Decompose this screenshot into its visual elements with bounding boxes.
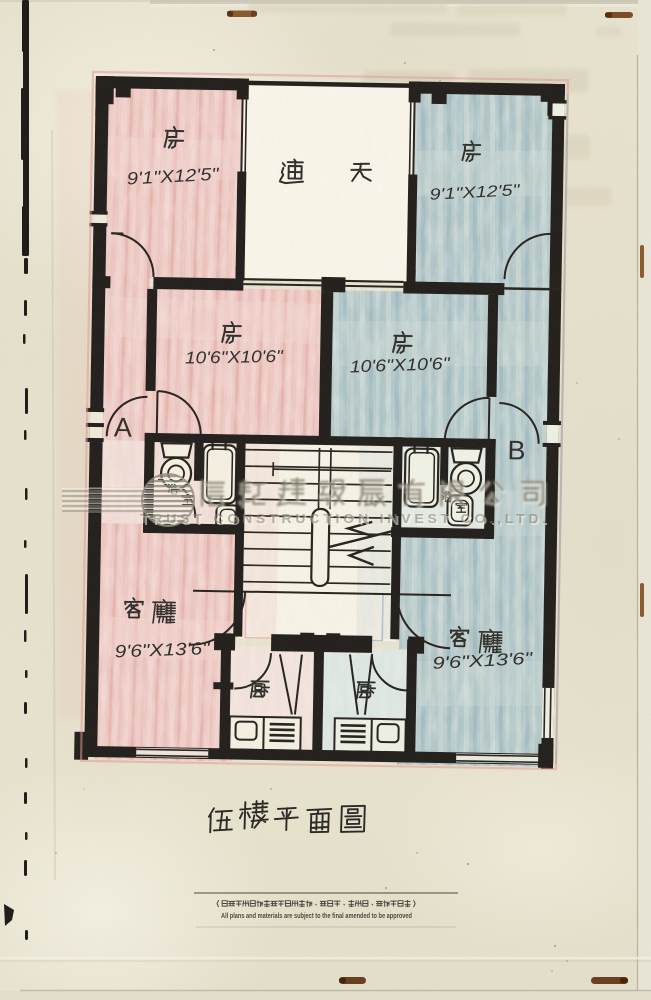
svg-text:All plans and materials are su: All plans and materials are subject to t… [221, 911, 412, 920]
svg-text:TRUST CONSTRUCTION INVEST CO.,: TRUST CONSTRUCTION INVEST CO.,LTD. [140, 512, 550, 526]
